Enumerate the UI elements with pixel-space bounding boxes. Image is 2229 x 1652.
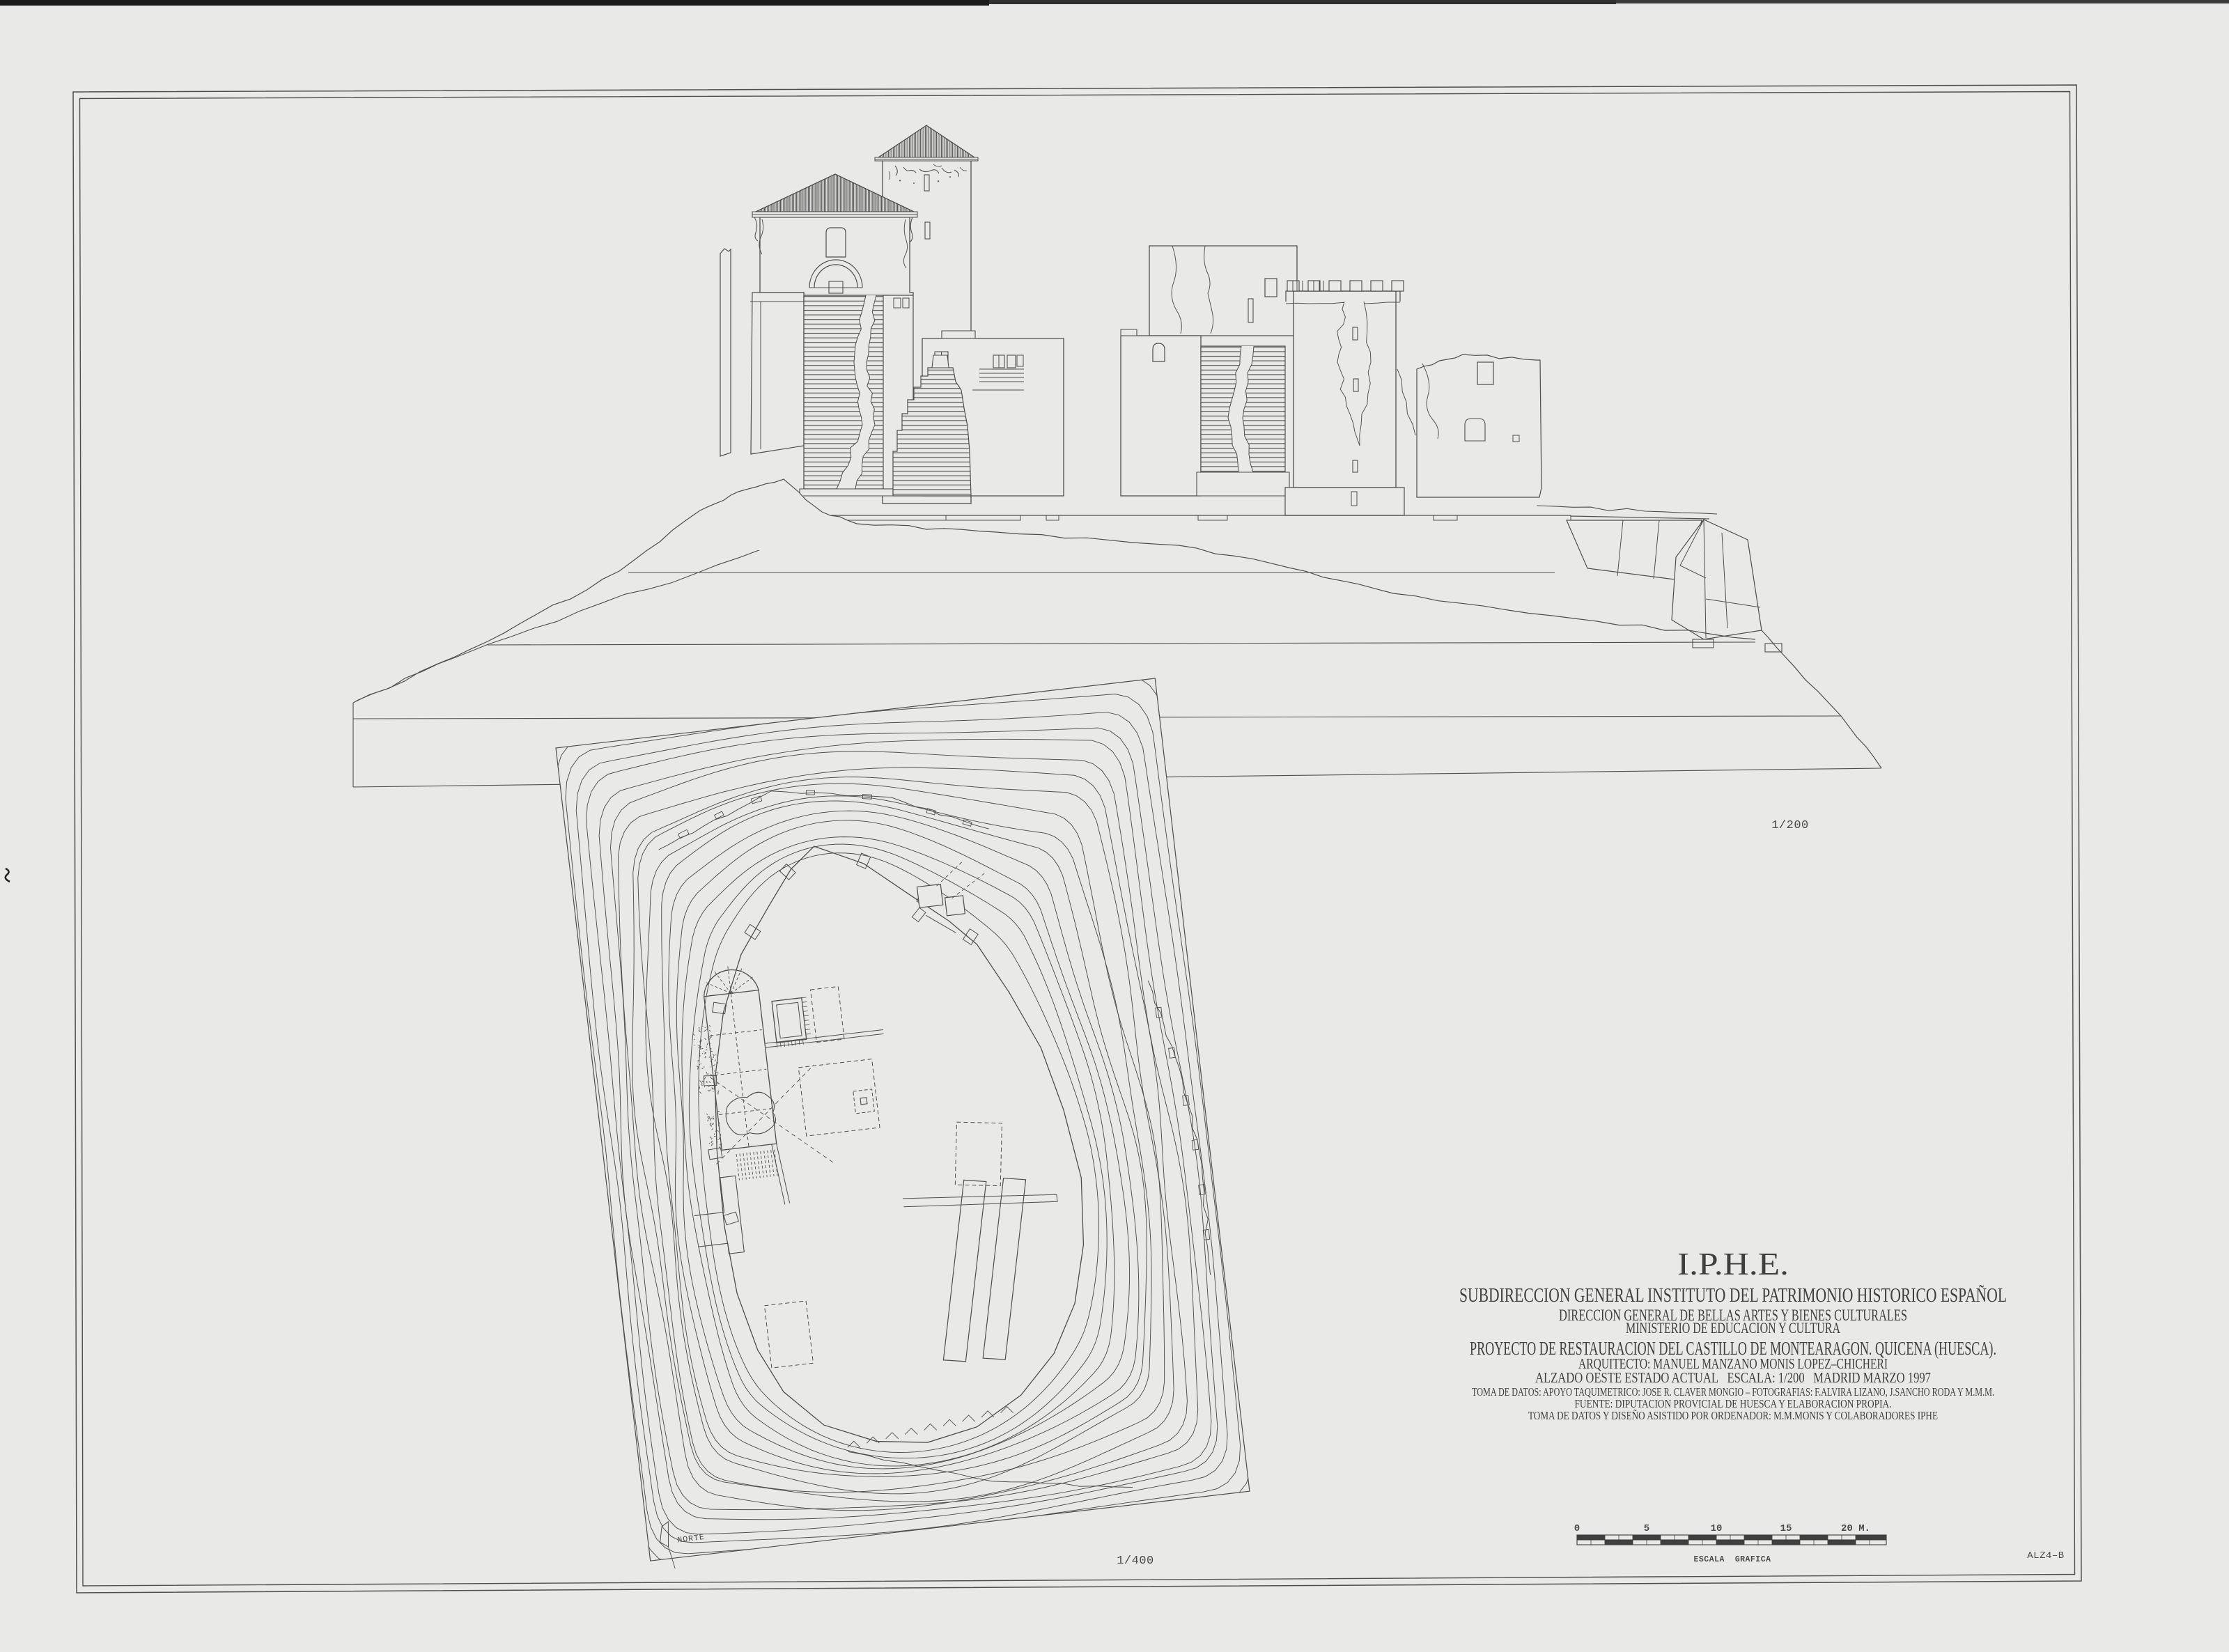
svg-text:10: 10: [1711, 1523, 1723, 1534]
svg-text:I.P.H.E.: I.P.H.E.: [1677, 1246, 1789, 1281]
svg-text:SUBDIRECCION GENERAL INSTITUTO: SUBDIRECCION GENERAL INSTITUTO DEL PATRI…: [1459, 1284, 2007, 1307]
svg-text:ALZADO OESTE ESTADO ACTUAL E: ALZADO OESTE ESTADO ACTUAL ESCALA: 1/200…: [1535, 1369, 1931, 1386]
svg-text:5: 5: [1644, 1523, 1649, 1534]
svg-text:20 M.: 20 M.: [1841, 1523, 1870, 1534]
svg-text:TOMA DE DATOS Y DISEÑO ASISTID: TOMA DE DATOS Y DISEÑO ASISTIDO POR ORDE…: [1528, 1409, 1938, 1422]
svg-text:MINISTERIO DE EDUCACION Y CULT: MINISTERIO DE EDUCACION Y CULTURA: [1626, 1319, 1840, 1337]
svg-text:ESCALA GRAFICA: ESCALA GRAFICA: [1693, 1555, 1771, 1564]
svg-text:15: 15: [1780, 1523, 1792, 1534]
svg-text:0: 0: [1574, 1523, 1580, 1534]
svg-text:ALZ4–B: ALZ4–B: [2027, 1550, 2064, 1561]
svg-text:1/400: 1/400: [1117, 1554, 1154, 1568]
svg-text:1/200: 1/200: [1771, 819, 1809, 832]
